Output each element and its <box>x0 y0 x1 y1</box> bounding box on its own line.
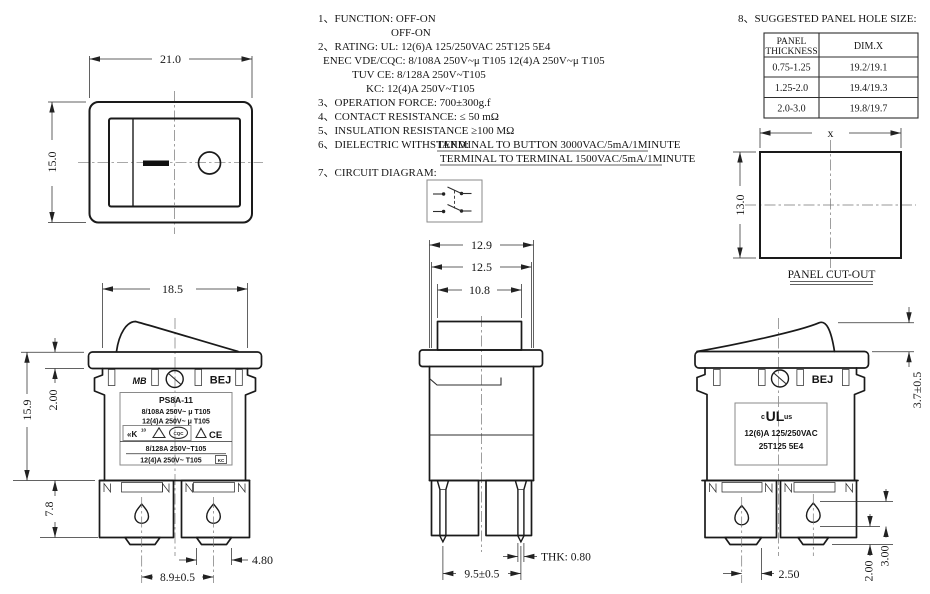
enec-mark-icon: «K <box>127 430 137 439</box>
model-number: PS8A-11 <box>159 395 193 405</box>
rating-line3: 8/128A 250V~T105 <box>146 446 207 453</box>
rocker-actuator <box>117 322 239 352</box>
engineering-drawing-page: 21.0 15.0 1、FUNCTION: OFF-ON OFF-ON 2、RA… <box>0 0 930 594</box>
spec-circuit-diagram: 7、CIRCUIT DIAGRAM: <box>318 167 437 179</box>
rocker-cap <box>438 322 522 351</box>
hole-height-dim: 3.00 <box>878 546 892 567</box>
row3-thickness: 2.0-3.0 <box>777 104 805 115</box>
spec-rating-ul: 2、RATING: UL: 12(6)A 125/250VAC 25T125 5… <box>318 41 551 53</box>
pin-pitch-dim: 9.5±0.5 <box>464 569 499 581</box>
front-view: 21.0 15.0 <box>45 52 263 234</box>
ul-rating-line2: 25T125 5E4 <box>759 442 804 451</box>
brand-text: BEJ <box>812 374 833 386</box>
side-view-left: MB BEJ PS8A-11 8/108A 250V~ μ T105 12(4)… <box>13 282 273 584</box>
flange <box>420 350 543 367</box>
col-panel-1: PANEL <box>777 37 807 47</box>
side-view-middle: 12.9 12.5 10.8 THK: 0.80 9.5±0.5 <box>420 238 592 581</box>
rocker-protrusion-dim: 3.7±0.5 <box>910 372 924 409</box>
flange <box>695 352 869 369</box>
row2-dimx: 19.4/19.3 <box>850 83 888 94</box>
svg-text:KC: KC <box>218 458 225 463</box>
spec-insulation-resistance: 5、INSULATION RESISTANCE ≥100 MΩ <box>318 125 514 137</box>
svg-text:CQC: CQC <box>174 431 185 436</box>
switch-bezel <box>90 102 253 223</box>
rating-line4: 12(4)A 250V~ T105 <box>140 458 202 465</box>
col-panel-2: THICKNESS <box>765 47 817 57</box>
spec-rating-tuv: TUV CE: 8/128A 250V~T105 <box>352 69 486 81</box>
spec-notes: 1、FUNCTION: OFF-ON OFF-ON 2、RATING: UL: … <box>318 13 696 179</box>
drawing-canvas: 21.0 15.0 1、FUNCTION: OFF-ON OFF-ON 2、RA… <box>0 0 930 594</box>
warning-triangle-icon <box>196 428 206 437</box>
table-heading: 8、SUGGESTED PANEL HOLE SIZE: <box>738 13 917 25</box>
hole-offset-dim: 2.50 <box>779 567 800 581</box>
spec-rating-enec: ENEC VDE/CQC: 8/108A 250V~μ T105 12(4)A … <box>323 55 605 67</box>
panel-cutout-view: x 13.0 PANEL CUT-OUT <box>733 126 916 285</box>
row1-dimx: 19.2/19.1 <box>850 63 888 74</box>
side-view-right: BEJ c UL us 12(6)A 125/250VAC 25T125 5E4… <box>695 307 924 583</box>
foot-width-dim: 4.80 <box>252 553 273 567</box>
mid-dim-10-8: 10.8 <box>469 283 490 297</box>
spec-function: 1、FUNCTION: OFF-ON <box>318 13 436 25</box>
ul-us: us <box>784 414 792 421</box>
mid-dim-12-5: 12.5 <box>471 260 492 274</box>
pin-thickness-dim: THK: 0.80 <box>541 552 591 564</box>
terminal-height-dim: 7.8 <box>42 502 56 517</box>
col-dimx: DIM.X <box>854 41 884 52</box>
mid-dim-12-9: 12.9 <box>471 238 492 252</box>
brand-text: BEJ <box>210 375 231 387</box>
terminal-pitch-dim: 8.9±0.5 <box>160 572 195 584</box>
left-height-dim: 15.9 <box>20 400 34 421</box>
ul-rating-line1: 12(6)A 125/250VAC <box>744 429 817 438</box>
rating-line2: 12(4)A 250V~ μ T105 <box>142 419 210 426</box>
row3-dimx: 19.8/19.7 <box>850 104 888 115</box>
hole-bottom-dim: 2.00 <box>862 561 876 582</box>
spec-contact-resistance: 4、CONTACT RESISTANCE: ≤ 50 mΩ <box>318 111 499 123</box>
front-height-dim: 15.0 <box>45 152 59 173</box>
cutout-x-dim: x <box>828 126 834 140</box>
terminal-housing <box>182 481 250 538</box>
on-symbol <box>143 161 169 167</box>
panel-hole-table: 8、SUGGESTED PANEL HOLE SIZE: PANEL THICK… <box>738 13 918 118</box>
rocker-actuator <box>697 322 835 351</box>
ul-mark-icon: UL <box>766 408 785 424</box>
enec-10: 10 <box>141 428 147 433</box>
spec-rating-kc: KC: 12(4)A 250V~T105 <box>366 83 475 95</box>
rating-line1: 8/108A 250V~ μ T105 <box>142 409 211 416</box>
cutout-caption: PANEL CUT-OUT <box>788 269 876 281</box>
left-width-dim: 18.5 <box>162 282 183 296</box>
cutout-height-dim: 13.0 <box>733 195 747 216</box>
spec-dielectric-btn: TERMINAL TO BUTTON 3000VAC/5mA/1MINUTE <box>437 139 681 151</box>
row2-thickness: 1.25-2.0 <box>775 83 808 94</box>
spec-function-2: OFF-ON <box>391 27 431 39</box>
spec-operation-force: 3、OPERATION FORCE: 700±300g.f <box>318 97 491 109</box>
triangle-mark-icon <box>153 428 165 438</box>
circuit-diagram <box>427 180 482 222</box>
ce-mark: CE <box>209 430 222 441</box>
mold-logo: MB <box>133 376 147 386</box>
front-width-dim: 21.0 <box>160 52 181 66</box>
terminal-housing <box>432 481 479 536</box>
ul-c: c <box>761 414 765 421</box>
spec-dielectric-term: TERMINAL TO TERMINAL 1500VAC/5mA/1MINUTE <box>440 153 696 165</box>
flange-thickness-dim: 2.00 <box>46 390 60 411</box>
row1-thickness: 0.75-1.25 <box>772 63 810 74</box>
